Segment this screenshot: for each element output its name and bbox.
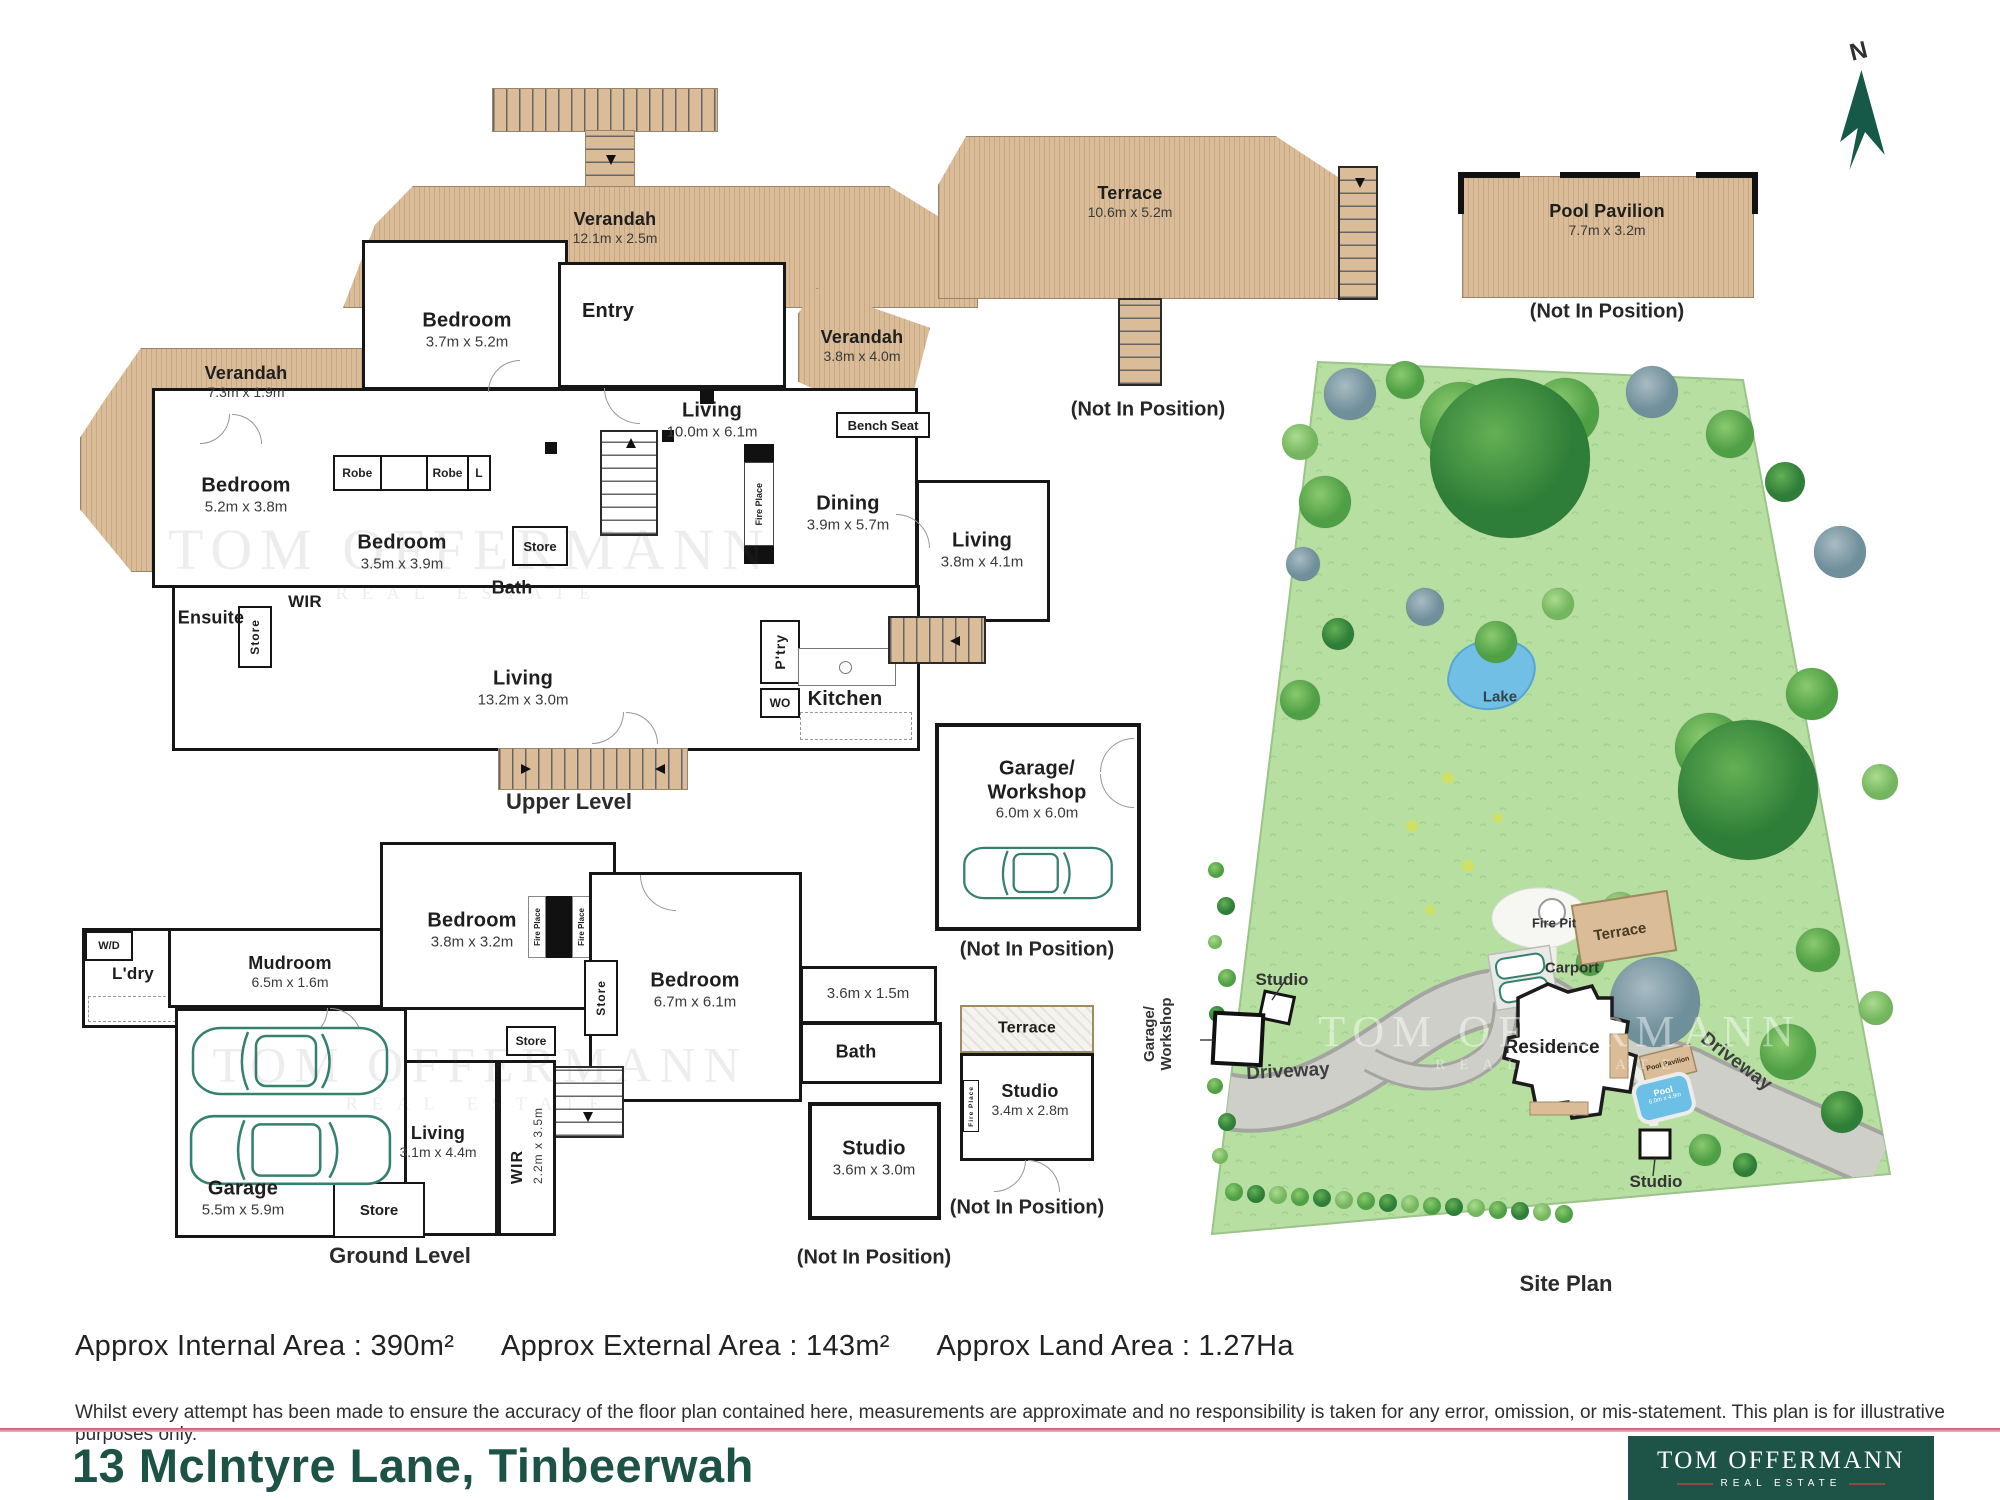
floorplan-page: Robe Robe L Store Store Fire Place Bench… (0, 0, 2000, 1500)
fireplace-cap (744, 444, 774, 462)
living-main-label: Living 10.0m x 6.1m (667, 399, 758, 440)
logo-bar-left (1677, 1483, 1713, 1485)
logo-tagline: REAL ESTATE (1721, 1478, 1842, 1489)
north-label: N (1847, 36, 1871, 67)
kitchen-label: Kitchen (808, 688, 883, 712)
stairs-ground (548, 1066, 624, 1138)
carport-label: Carport (1545, 960, 1599, 977)
stair-arrow-icon (626, 438, 636, 448)
linen-cupboard: L (469, 457, 489, 489)
studio-label: Studio 3.6m x 3.0m (833, 1137, 916, 1178)
car-icon (190, 1024, 390, 1098)
sink-icon (839, 661, 852, 674)
entry-label: Entry (582, 300, 634, 324)
living-long-label: Living 13.2m x 3.0m (478, 667, 569, 708)
residence-label: Residence (1504, 1037, 1599, 1059)
fireplace-body: Fire Place (744, 462, 774, 546)
verandah-right-label: Verandah 3.8m x 4.0m (821, 327, 904, 365)
logo-name: TOM OFFERMANN (1657, 1447, 1905, 1475)
agency-logo: TOM OFFERMANN REAL ESTATE (1628, 1436, 1934, 1500)
bath-upper-label: Bath (492, 577, 533, 598)
kitchen-bench-dashed (800, 712, 912, 740)
fireplace-label-left: Fire Place (528, 896, 546, 958)
area-summary: Approx Internal Area : 390m² Approx Exte… (75, 1330, 1334, 1363)
upper-level-title: Upper Level (506, 789, 632, 815)
bath-ground-label: Bath (836, 1041, 877, 1062)
wir-ground-label: WIR 2.2m x 3.5m (509, 1107, 545, 1189)
logo-bar-right (1849, 1483, 1885, 1485)
north-arrow-icon (1838, 70, 1890, 170)
robe-1: Robe (335, 457, 382, 489)
bedroom-large-label: Bedroom 6.7m x 6.1m (650, 969, 739, 1010)
dining-label: Dining 3.9m x 5.7m (807, 492, 890, 533)
upper-bottom-deck (498, 748, 688, 790)
garage-workshop-label: Garage/ Workshop 6.0m x 6.0m (987, 758, 1086, 823)
garage-workshop-nip: (Not In Position) (960, 939, 1114, 962)
store-bath-box: Store (512, 526, 568, 566)
studio-terrace-label: Studio 3.4m x 2.8m (991, 1081, 1068, 1119)
fire-pit-label: Fire Pit (1532, 916, 1576, 931)
room-entry (558, 262, 786, 388)
studio-terrace-terrace-label: Terrace (998, 1020, 1056, 1039)
stair-arrow-icon (606, 155, 616, 165)
store-garage-box: Store (333, 1182, 425, 1238)
upper-top-deck (492, 88, 718, 132)
room-3615-label: 3.6m x 1.5m (827, 985, 910, 1003)
studio-fireplace: Fire Place (963, 1080, 979, 1132)
site-plan-title: Site Plan (1520, 1271, 1613, 1297)
studio-nip: (Not In Position) (797, 1247, 951, 1270)
bedroom-left-label: Bedroom 5.2m x 3.8m (201, 474, 290, 515)
site-garage-workshop-label: Garage/ Workshop (1141, 997, 1175, 1070)
terrace-label: Terrace 10.6m x 5.2m (1088, 183, 1173, 221)
driveway-left-label: Driveway (1246, 1059, 1330, 1085)
studio-terrace-nip: (Not In Position) (950, 1197, 1104, 1220)
upper-top-stairs (585, 130, 635, 190)
external-area: Approx External Area : 143m² (501, 1330, 890, 1362)
ground-level-title: Ground Level (329, 1243, 471, 1269)
stair-arrow-icon (950, 636, 960, 646)
wall-segment (1752, 172, 1758, 214)
stair-arrow-icon (655, 764, 665, 774)
living-right-label: Living 3.8m x 4.1m (941, 529, 1024, 570)
wall-segment (1560, 172, 1640, 178)
internal-area: Approx Internal Area : 390m² (75, 1330, 454, 1362)
site-studio-left-label: Studio (1256, 970, 1309, 990)
wall-segment (1458, 172, 1520, 178)
kitchen-island (798, 648, 896, 686)
wall-segment (1458, 172, 1464, 214)
pool-pavilion-nip: (Not In Position) (1530, 301, 1684, 324)
living-ground-label: Living 3.1m x 4.4m (399, 1123, 476, 1161)
garage-label: Garage 5.5m x 5.9m (202, 1177, 285, 1218)
fireplace-upper: Fire Place (744, 444, 774, 564)
land-area: Approx Land Area : 1.27Ha (937, 1330, 1294, 1362)
site-garage-workshop (1213, 1013, 1264, 1065)
verandah-left-label: Verandah 7.3m x 1.9m (205, 363, 288, 401)
site-plan (1200, 350, 1960, 1260)
stair-arrow-icon (521, 764, 531, 774)
washer-dryer-box: W/D (85, 931, 133, 961)
laundry-label: L'dry (112, 964, 154, 984)
bedroom-top-label: Bedroom 3.7m x 5.2m (422, 309, 511, 350)
ensuite-label: Ensuite (178, 607, 244, 628)
bench-seat-box: Bench Seat (836, 412, 930, 438)
fireplace-label-right: Fire Place (572, 896, 590, 958)
bedroom-mid-label: Bedroom 3.5m x 3.9m (357, 531, 446, 572)
fireplace-cap (744, 546, 774, 564)
bedroom-small-label: Bedroom 3.8m x 3.2m (427, 909, 516, 950)
mudroom-label: Mudroom 6.5m x 1.6m (248, 953, 331, 991)
wall-oven-box: WO (760, 688, 800, 718)
terrace-stairs-bottom (1118, 298, 1162, 386)
stair-arrow-icon (583, 1112, 593, 1122)
pantry-box: P'try (760, 620, 800, 684)
lake-label: Lake (1483, 689, 1517, 706)
fireplace-core (546, 896, 572, 958)
door-arc (1028, 1160, 1060, 1192)
wall-segment (1696, 172, 1758, 178)
store-mid-box: Store (506, 1026, 556, 1056)
robe-gap (382, 457, 429, 489)
property-address: 13 McIntyre Lane, Tinbeerwah (72, 1438, 754, 1493)
car-icon (962, 838, 1114, 908)
wir-label: WIR (288, 592, 322, 612)
logo-tagline-row: REAL ESTATE (1669, 1478, 1894, 1489)
door-marker (545, 442, 557, 454)
verandah-top-label: Verandah 12.1m x 2.5m (573, 209, 658, 247)
pool-pavilion-label: Pool Pavilion 7.7m x 3.2m (1549, 201, 1665, 239)
divider-line (0, 1428, 2000, 1432)
door-arc (994, 1160, 1026, 1192)
fireplace-double: Fire Place Fire Place (528, 896, 590, 958)
site-studio-bottom-label: Studio (1630, 1172, 1683, 1192)
terrace-stairs-right (1338, 166, 1378, 300)
site-plan-graphic (1200, 350, 1960, 1260)
store-tall-box: Store (584, 960, 618, 1036)
robe-row: Robe Robe L (333, 455, 491, 491)
stair-arrow-icon (1355, 178, 1365, 188)
stairs-kitchen-landing (888, 616, 986, 664)
stairs-center (600, 430, 658, 536)
robe-2: Robe (428, 457, 469, 489)
